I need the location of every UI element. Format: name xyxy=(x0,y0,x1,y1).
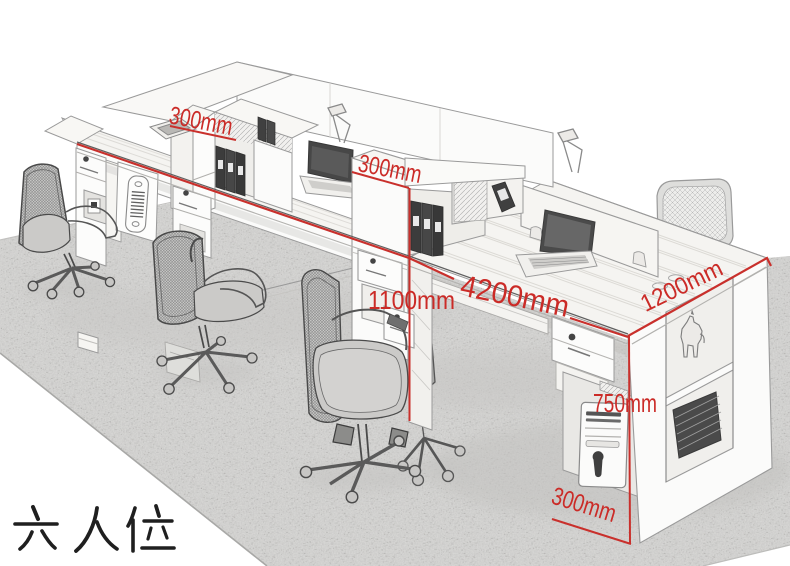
svg-text:750mm: 750mm xyxy=(593,388,657,418)
svg-text:1100mm: 1100mm xyxy=(368,285,455,315)
